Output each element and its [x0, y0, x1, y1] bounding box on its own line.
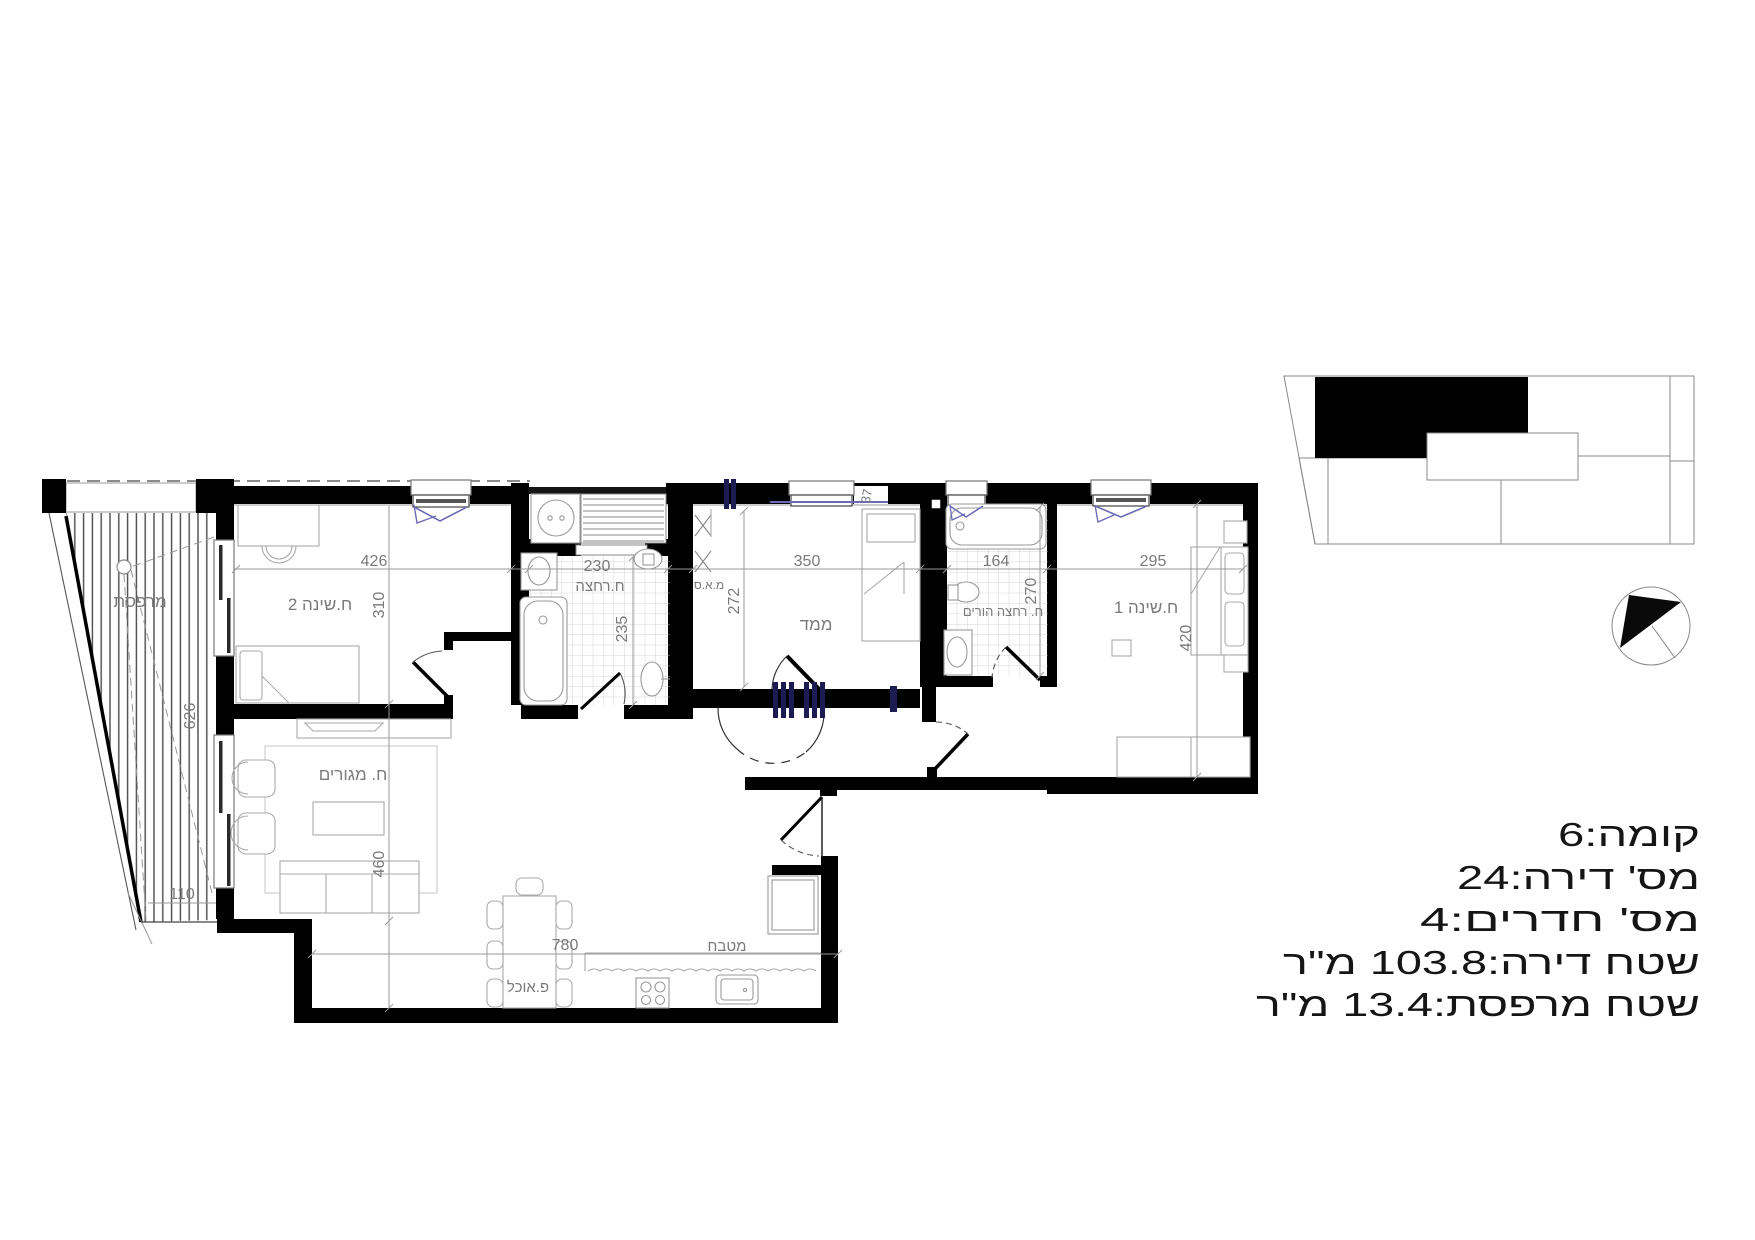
- svg-text:626: 626: [182, 703, 199, 730]
- svg-text:מ.א.ס: מ.א.ס: [694, 578, 724, 592]
- svg-text:37: 37: [858, 488, 875, 505]
- svg-text:230: 230: [584, 558, 611, 575]
- svg-text:שטח מרפסת:13.4 מ"ר: שטח מרפסת:13.4 מ"ר: [1256, 986, 1700, 1023]
- svg-text:270: 270: [1023, 578, 1040, 605]
- svg-text:780: 780: [552, 937, 579, 954]
- svg-text:מס' חדרים:4: מס' חדרים:4: [1420, 901, 1700, 938]
- svg-text:ח. מגורים: ח. מגורים: [319, 765, 388, 784]
- svg-text:110: 110: [169, 886, 195, 903]
- svg-text:350: 350: [794, 553, 821, 570]
- svg-text:426: 426: [361, 553, 388, 570]
- svg-text:420: 420: [1178, 625, 1195, 652]
- svg-text:164: 164: [983, 553, 1010, 570]
- svg-text:ח. רחצה הורים: ח. רחצה הורים: [963, 604, 1043, 619]
- svg-text:קומה:6: קומה:6: [1558, 816, 1700, 853]
- svg-text:שטח דירה:103.8 מ"ר: שטח דירה:103.8 מ"ר: [1283, 944, 1700, 981]
- svg-text:272: 272: [726, 588, 743, 615]
- svg-text:מס' דירה:24: מס' דירה:24: [1457, 859, 1700, 896]
- svg-text:ח.שינה 1: ח.שינה 1: [1114, 598, 1178, 617]
- svg-text:235: 235: [614, 616, 631, 643]
- svg-text:460: 460: [371, 851, 388, 878]
- svg-text:מרפסת: מרפסת: [113, 592, 166, 611]
- svg-text:310: 310: [371, 592, 388, 619]
- svg-text:295: 295: [1140, 553, 1167, 570]
- svg-text:פ.אוכל: פ.אוכל: [507, 979, 549, 996]
- svg-text:ח.שינה 2: ח.שינה 2: [288, 595, 352, 614]
- svg-text:ממד: ממד: [800, 615, 833, 634]
- svg-text:מטבח: מטבח: [708, 938, 747, 955]
- svg-text:ח.רחצה: ח.רחצה: [575, 578, 624, 595]
